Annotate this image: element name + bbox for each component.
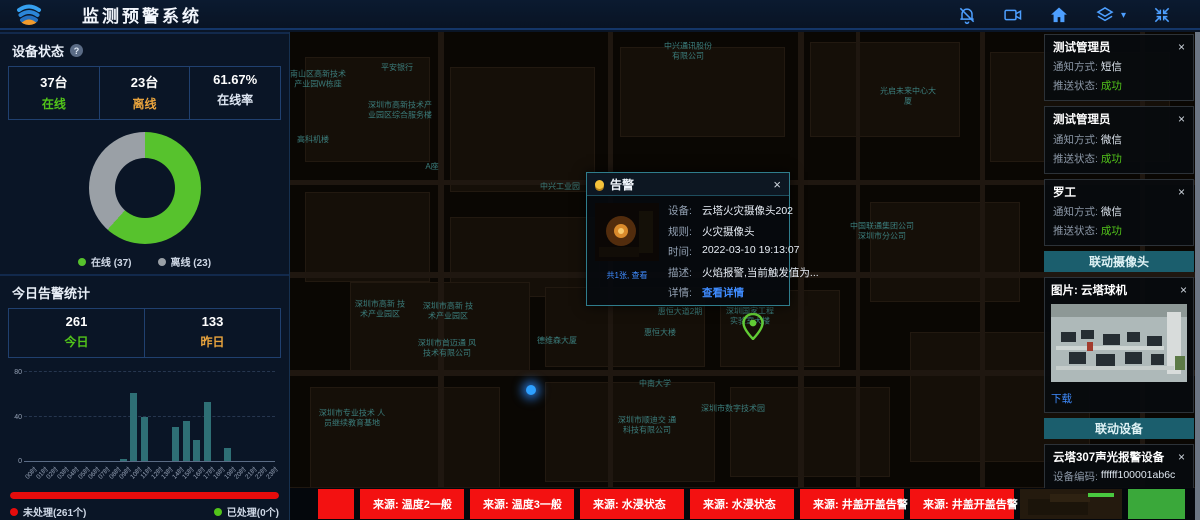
map-label: 深圳市数字技术园: [701, 404, 765, 414]
map-label: A座: [425, 162, 438, 172]
stat-value: 61.67%: [190, 72, 280, 87]
card-row-label: 通知方式:: [1053, 204, 1098, 219]
green-thumbnail-image[interactable]: [1128, 489, 1185, 519]
alert-popup-title: 告警: [610, 176, 767, 193]
alert-progress-fill: [10, 492, 279, 499]
legend-dot-icon: [158, 258, 166, 266]
camera-card-title: 图片: 云塔球机: [1051, 284, 1180, 298]
close-icon[interactable]: ×: [1178, 451, 1185, 463]
stat-value: 23台: [100, 72, 190, 91]
hourly-alerts-bar-chart: 0408000时01时02时03时04时05时06时07时08时09时10时11…: [24, 372, 275, 490]
map-pin-icon[interactable]: [742, 313, 764, 340]
alert-banner-list: 来源: 温度2一般来源: 温度3一般来源: 水浸状态来源: 水浸状态来源: 井盖…: [360, 489, 1014, 519]
alert-banner-text: 来源: 水浸状态: [703, 496, 776, 512]
alert-banner-bar: 来源: 温度2一般来源: 温度3一般来源: 水浸状态来源: 水浸状态来源: 井盖…: [290, 488, 1200, 520]
stat-label: 离线: [100, 95, 190, 112]
legend-dot-icon: [214, 508, 222, 516]
device-section-header: 联动设备: [1044, 418, 1194, 439]
toast-stack: 测试管理员×通知方式:短信推送状态:成功测试管理员×通知方式:微信推送状态:成功…: [1044, 34, 1194, 246]
card-row-label: 推送状态:: [1053, 223, 1098, 238]
card-header: 测试管理员×: [1053, 41, 1185, 55]
close-icon[interactable]: ×: [1178, 113, 1185, 125]
popup-row: 详情:查看详情: [668, 285, 819, 300]
card-row-label: 设备编码:: [1053, 469, 1098, 484]
close-icon[interactable]: ×: [773, 178, 781, 191]
alert-banner-partial[interactable]: [318, 489, 354, 519]
card-title: 云塔307声光报警设备: [1053, 451, 1178, 465]
notification-card: 测试管理员×通知方式:微信推送状态:成功: [1044, 106, 1194, 173]
alert-banner-text: 来源: 温度3一般: [483, 496, 562, 512]
card-row-label: 推送状态:: [1053, 151, 1098, 166]
y-axis-tick: 0: [8, 458, 22, 465]
view-details-link[interactable]: 查看详情: [702, 285, 744, 300]
monitoring-dashboard: 监测预警系统 ▾ 设备状态 ?: [0, 0, 1200, 520]
map-label: 中兴通讯股份 有限公司: [659, 42, 717, 63]
alert-snapshot[interactable]: 共1张, 查看: [595, 203, 659, 306]
today-alerts-stats: 261今日133昨日: [8, 308, 281, 358]
map-label: 高科机楼: [297, 135, 329, 145]
card-row-value: 成功: [1101, 78, 1122, 93]
map-label: 南山区高新技术 产业园W栋座: [290, 70, 351, 91]
popup-row-label: 规则:: [668, 224, 702, 239]
legend-dot-icon: [10, 508, 18, 516]
popup-row: 时间:2022-03-10 19:13:07: [668, 244, 819, 259]
scrollbar-thumb[interactable]: [1195, 32, 1200, 520]
map-label: 惠恒大楼: [644, 328, 676, 338]
popup-row-value: 2022-03-10 19:13:07: [702, 244, 800, 259]
collapse-icon[interactable]: [1152, 5, 1172, 25]
card-row: 推送状态:成功: [1053, 151, 1185, 166]
stat-label: 昨日: [145, 333, 280, 350]
popup-row-label: 描述:: [668, 265, 702, 280]
bar: [204, 402, 211, 461]
gridline: [24, 416, 275, 417]
map-label: 深圳市高新技术产 业园区综合服务楼: [363, 101, 437, 122]
card-title: 测试管理员: [1053, 41, 1178, 55]
card-row-label: 通知方式:: [1053, 132, 1098, 147]
stat-cell: 23台离线: [99, 67, 190, 119]
alert-banner-text: 来源: 井盖开盖告警: [923, 496, 1018, 512]
vertical-scrollbar[interactable]: [1195, 32, 1200, 520]
card-row: 通知方式:微信: [1053, 204, 1185, 219]
card-title: 测试管理员: [1053, 113, 1178, 127]
alert-banner[interactable]: 来源: 温度3一般: [470, 489, 574, 519]
card-row-label: 通知方式:: [1053, 59, 1098, 74]
card-row-value: 成功: [1101, 151, 1122, 166]
today-alerts-title: 今日告警统计: [12, 283, 90, 302]
popup-row: 设备:云塔火灾摄像头202: [668, 203, 819, 218]
map-label: 中兴工业园: [540, 182, 580, 192]
stat-label: 在线: [9, 95, 99, 112]
card-row: 推送状态:成功: [1053, 223, 1185, 238]
card-row-value: 成功: [1101, 223, 1122, 238]
close-icon[interactable]: ×: [1178, 186, 1185, 198]
app-logo-icon: [16, 1, 42, 27]
y-axis-tick: 80: [8, 369, 22, 376]
bar: [141, 417, 148, 462]
today-alerts-panel: 今日告警统计 261今日133昨日 0408000时01时02时03时04时05…: [0, 274, 289, 519]
map-label: 深圳市顺迪交 通科技有限公司: [616, 416, 678, 437]
left-sidebar: 设备状态 ? 37台在线23台离线61.67%在线率 在线 (37)离线 (23…: [0, 32, 290, 520]
page-title: 监测预警系统: [82, 2, 202, 27]
card-header: 罗工×: [1053, 186, 1185, 200]
alert-banner[interactable]: 来源: 井盖开盖告警: [800, 489, 904, 519]
card-row-label: 推送状态:: [1053, 78, 1098, 93]
stat-cell: 133昨日: [144, 309, 280, 357]
handled-label: 已处理(0个): [227, 504, 279, 519]
alert-banner-text: 来源: 水浸状态: [593, 496, 666, 512]
map-label: 中国联通集团公司 深圳市分公司: [849, 222, 915, 243]
device-status-panel: 设备状态 ? 37台在线23台离线61.67%在线率 在线 (37)离线 (23…: [0, 32, 289, 269]
help-icon[interactable]: ?: [70, 44, 83, 57]
map-label: 光启未来中心大厦: [878, 87, 938, 108]
alert-thumbnail-image[interactable]: [1020, 489, 1122, 519]
linked-camera-card: 图片: 云塔球机 × 下载: [1044, 277, 1194, 412]
stat-cell: 61.67%在线率: [189, 67, 280, 119]
camera-snapshot-image[interactable]: [1051, 304, 1187, 382]
y-axis-tick: 40: [8, 414, 22, 421]
card-title: 罗工: [1053, 186, 1178, 200]
bell-off-icon[interactable]: [957, 5, 977, 25]
card-row: 通知方式:短信: [1053, 59, 1185, 74]
map-label: 深圳市高新 技术产业园区: [420, 302, 476, 323]
chevron-down-icon[interactable]: ▾: [1121, 10, 1126, 21]
card-row: 推送状态:成功: [1053, 78, 1185, 93]
unhandled-label: 未处理(261个): [23, 504, 86, 519]
layers-icon[interactable]: [1095, 5, 1115, 25]
alarm-bulb-icon: [595, 180, 604, 189]
card-row-value: 短信: [1101, 59, 1122, 74]
map-label: 平安银行: [381, 63, 413, 73]
popup-row: 描述:火焰报警,当前触发值为...: [668, 265, 819, 280]
alert-popup: 告警 × 共1张, 查看 设备:云塔火灾摄像头202规则:火灾摄像头时间:202…: [586, 172, 790, 306]
notification-column: 测试管理员×通知方式:短信推送状态:成功测试管理员×通知方式:微信推送状态:成功…: [1044, 34, 1194, 520]
popup-row-value: 火灾摄像头: [702, 224, 755, 239]
alert-banner[interactable]: 来源: 水浸状态: [690, 489, 794, 519]
notification-card: 测试管理员×通知方式:短信推送状态:成功: [1044, 34, 1194, 101]
bar: [172, 427, 179, 461]
app-header: 监测预警系统 ▾: [0, 0, 1200, 30]
gridline: [24, 371, 275, 372]
alert-progress-legend: 未处理(261个) 已处理(0个): [10, 504, 279, 519]
map-label: 德维森大厦: [537, 336, 577, 346]
alert-popup-header: 告警 ×: [587, 173, 789, 196]
card-row: 设备编码:ffffff100001ab6c: [1053, 469, 1185, 484]
alert-banner-text: 来源: 井盖开盖告警: [813, 496, 908, 512]
unhandled-legend: 未处理(261个): [10, 504, 86, 519]
popup-row-value: 火焰报警,当前触发值为...: [702, 265, 819, 280]
alert-progress-track: [10, 492, 279, 499]
card-row: 通知方式:微信: [1053, 132, 1185, 147]
card-row-value: 微信: [1101, 204, 1122, 219]
legend-label: 离线 (23): [171, 254, 212, 269]
popup-row-value: 云塔火灾摄像头202: [702, 203, 793, 218]
bar: [130, 393, 137, 461]
popup-row-label: 设备:: [668, 203, 702, 218]
popup-row-label: 详情:: [668, 285, 702, 300]
map-label: 深圳市专业技术 人员继续教育基地: [317, 409, 387, 430]
notification-card: 罗工×通知方式:微信推送状态:成功: [1044, 179, 1194, 246]
alert-popup-details: 设备:云塔火灾摄像头202规则:火灾摄像头时间:2022-03-10 19:13…: [668, 203, 819, 306]
camera-section-header: 联动摄像头: [1044, 251, 1194, 272]
map-label: 中南大学: [639, 379, 671, 389]
bar: [120, 459, 127, 461]
close-icon[interactable]: ×: [1178, 41, 1185, 53]
fire-snapshot-image: [595, 203, 659, 261]
device-status-donut-chart: [89, 132, 201, 244]
card-row-value: 微信: [1101, 132, 1122, 147]
bar: [183, 421, 190, 461]
stat-label: 在线率: [190, 91, 280, 108]
stat-value: 133: [145, 314, 280, 329]
donut-hole: [115, 158, 175, 218]
handled-legend: 已处理(0个): [214, 504, 279, 519]
popup-row-label: 时间:: [668, 244, 702, 259]
legend-item: 在线 (37): [78, 254, 132, 269]
legend-dot-icon: [78, 258, 86, 266]
snapshot-caption-link[interactable]: 共1张, 查看: [595, 270, 659, 281]
device-status-stats: 37台在线23台离线61.67%在线率: [8, 66, 281, 120]
map-label: 深圳市高新 技术产业园区: [352, 300, 408, 321]
stat-cell: 261今日: [9, 309, 144, 357]
donut-legend: 在线 (37)离线 (23): [0, 254, 289, 269]
legend-item: 离线 (23): [158, 254, 212, 269]
card-header: 测试管理员×: [1053, 113, 1185, 127]
bar: [224, 448, 231, 461]
alert-banner[interactable]: 来源: 温度2一般: [360, 489, 464, 519]
popup-row: 规则:火灾摄像头: [668, 224, 819, 239]
device-status-title: 设备状态: [12, 41, 64, 60]
stat-cell: 37台在线: [9, 67, 99, 119]
alert-banner[interactable]: 来源: 井盖开盖告警: [910, 489, 1014, 519]
header-actions: ▾: [957, 0, 1172, 30]
legend-label: 在线 (37): [91, 254, 132, 269]
home-icon[interactable]: [1049, 5, 1069, 25]
map-device-dot[interactable]: [526, 385, 536, 395]
map-label: 深圳市首迈通 风技术有限公司: [417, 339, 477, 360]
alert-banner[interactable]: 来源: 水浸状态: [580, 489, 684, 519]
card-header: 云塔307声光报警设备×: [1053, 451, 1185, 465]
download-link[interactable]: 下载: [1051, 391, 1187, 406]
stat-value: 37台: [9, 72, 99, 91]
video-camera-icon[interactable]: [1003, 5, 1023, 25]
bar: [193, 440, 200, 461]
card-row-value: ffffff100001ab6c: [1101, 469, 1175, 484]
alert-banner-text: 来源: 温度2一般: [373, 496, 452, 512]
stat-label: 今日: [9, 333, 144, 350]
close-icon[interactable]: ×: [1180, 284, 1187, 296]
stat-value: 261: [9, 314, 144, 329]
